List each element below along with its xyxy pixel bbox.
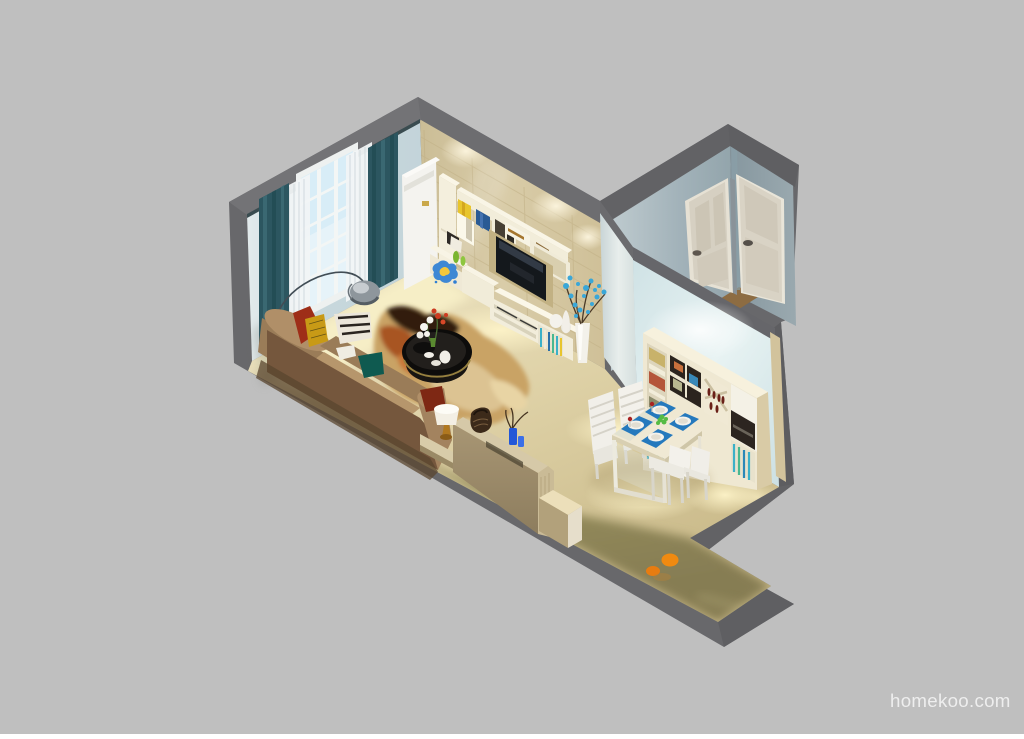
svg-text:homekoo.com: homekoo.com — [890, 690, 1011, 711]
